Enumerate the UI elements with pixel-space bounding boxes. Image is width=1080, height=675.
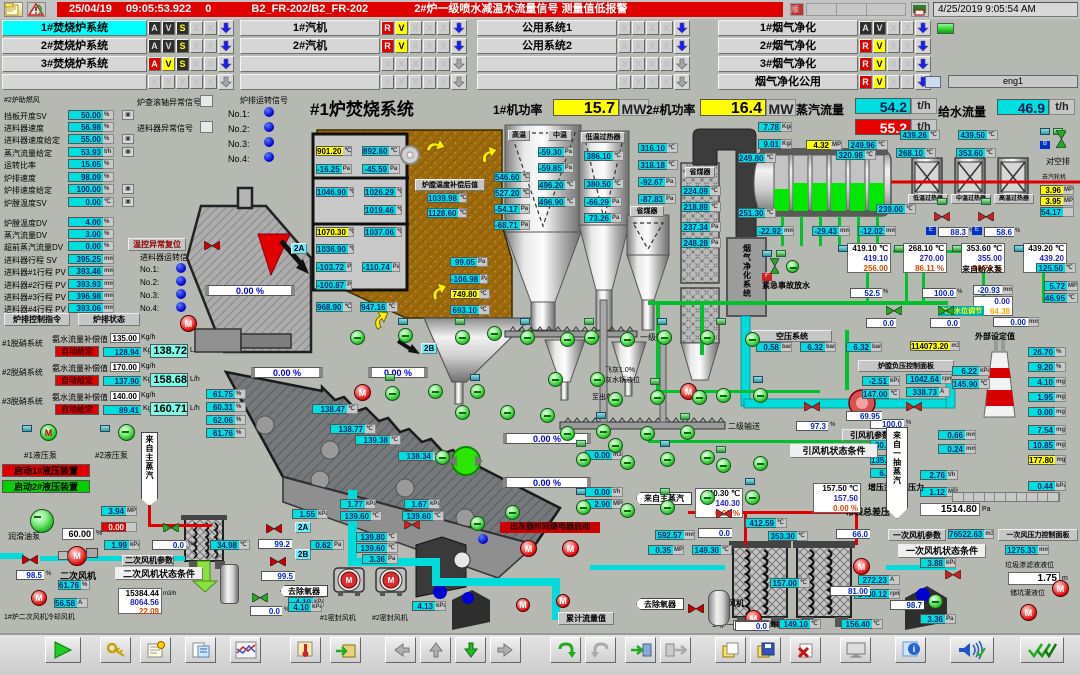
- svg-text:M: M: [388, 576, 395, 585]
- svg-text:i: i: [912, 644, 915, 654]
- svg-text:M: M: [346, 576, 353, 585]
